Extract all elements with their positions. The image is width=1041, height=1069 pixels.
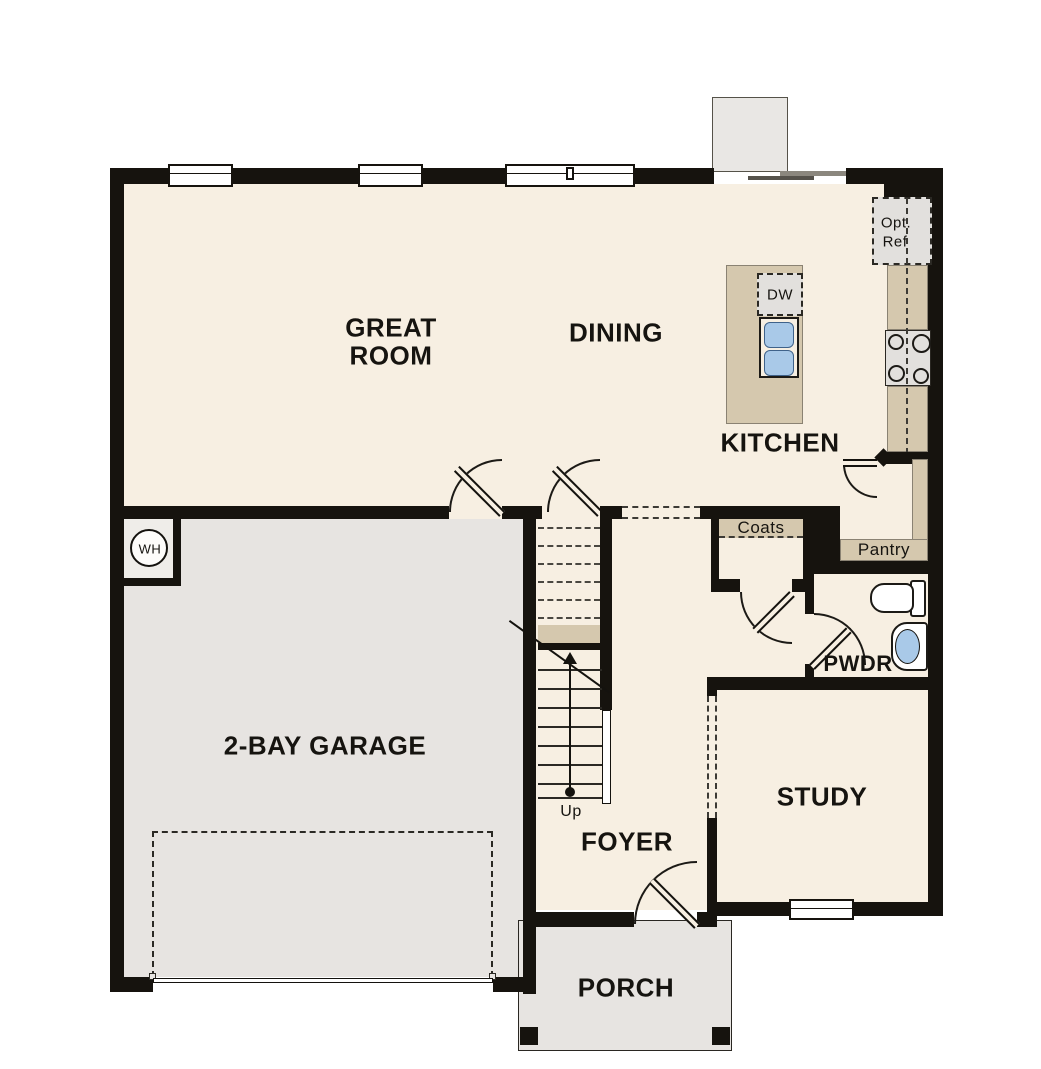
room-label-foyer: FOYER xyxy=(581,827,673,858)
pantry-bottom-wall xyxy=(811,561,943,574)
room-label-great-room-1: GREAT xyxy=(345,313,437,344)
optional-refrigerator-label-2: Ref xyxy=(883,234,908,251)
stair-handrail xyxy=(602,710,611,804)
garage-bottom-wall-right xyxy=(493,977,536,992)
stair-up-arrowhead xyxy=(563,652,577,664)
foyer-bottom-wall-right xyxy=(697,912,717,927)
wall-top-3 xyxy=(423,168,505,184)
window-great-room-2 xyxy=(358,164,423,187)
wall-mid-a xyxy=(110,506,449,519)
wh-nook-bottom-wall xyxy=(110,578,181,586)
pwdr-sink-basin xyxy=(895,629,920,664)
window-great-room-1 xyxy=(168,164,233,187)
stair-tread-dashed xyxy=(538,617,600,619)
room-label-kitchen: KITCHEN xyxy=(720,428,839,459)
chimney xyxy=(712,97,788,172)
pwdr-left-wall-upper xyxy=(805,574,814,614)
stove-burner xyxy=(913,368,929,384)
wall-top-4 xyxy=(635,168,714,184)
porch-post-left xyxy=(520,1027,538,1045)
stove-burner xyxy=(888,365,905,382)
dishwasher-label: DW xyxy=(767,287,793,304)
room-label-porch: PORCH xyxy=(578,973,674,1004)
stove-burner xyxy=(912,334,931,353)
stairs-up-label: Up xyxy=(560,803,581,821)
stair-tread xyxy=(538,797,602,799)
pantry-label: Pantry xyxy=(858,540,910,560)
garage-door-dashed-outline xyxy=(152,831,493,977)
stair-tread-dashed xyxy=(538,563,600,565)
room-label-study: STUDY xyxy=(777,782,868,813)
stair-up-arrow-line xyxy=(569,662,571,792)
counter-dashed-centerline xyxy=(906,198,908,454)
powder-label: PWDR xyxy=(823,651,892,677)
wall-mid-b xyxy=(502,506,542,519)
water-heater-label: WH xyxy=(139,542,162,557)
stair-tread-dashed xyxy=(538,599,600,601)
stair-right-wall xyxy=(600,506,612,710)
study-bottom-wall-right xyxy=(854,902,943,916)
stair-tread-dashed xyxy=(538,581,600,583)
study-cased-opening xyxy=(707,696,717,818)
pantry-shelf-right xyxy=(912,459,928,543)
window-mullion xyxy=(566,167,574,180)
fireplace-hearth-bar-1 xyxy=(748,176,814,180)
stair-landing xyxy=(538,625,600,645)
stove-burner xyxy=(888,334,904,350)
sink-basin-bottom xyxy=(764,350,794,376)
stair-up-dot xyxy=(565,787,575,797)
coats-label: Coats xyxy=(738,518,785,538)
garage-overhead-door xyxy=(153,978,493,983)
pantry-door-leaf xyxy=(843,459,877,467)
stair-tread-dashed xyxy=(538,527,600,529)
sink-basin-top xyxy=(764,322,794,348)
floor-plan: Up WH Opt. Ref DW Pantry Coats xyxy=(0,0,1041,1069)
coats-jamb-left xyxy=(711,579,740,592)
wh-nook-right-wall xyxy=(173,519,181,586)
porch-post-right xyxy=(712,1027,730,1045)
fireplace-hearth-bar-2 xyxy=(780,171,846,176)
study-bottom-wall-left xyxy=(707,902,789,916)
room-label-garage: 2-BAY GARAGE xyxy=(224,731,427,762)
wall-right xyxy=(928,168,943,916)
stair-tread-dashed xyxy=(538,545,600,547)
foyer-bottom-wall-left xyxy=(523,912,634,927)
cased-opening-dining xyxy=(622,506,700,519)
toilet-bowl xyxy=(870,583,914,613)
wall-top-2 xyxy=(233,168,358,184)
room-label-great-room-2: ROOM xyxy=(350,341,433,372)
garage-bottom-wall-left xyxy=(110,977,153,992)
study-top-wall xyxy=(707,677,943,690)
study-window xyxy=(789,899,854,920)
room-label-dining: DINING xyxy=(569,318,663,349)
